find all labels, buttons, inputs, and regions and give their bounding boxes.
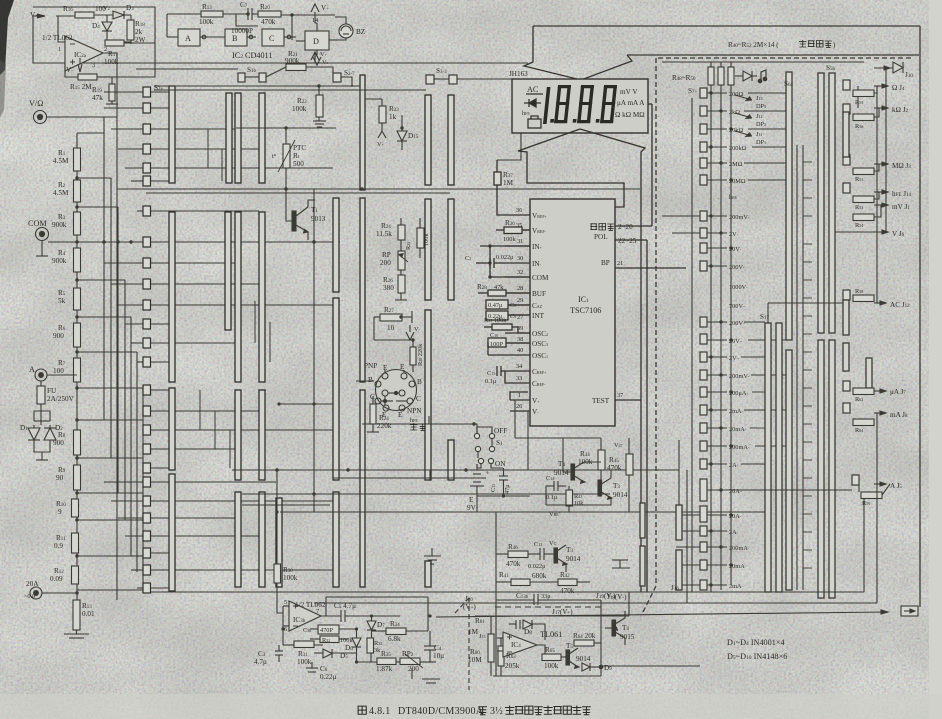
svg-text:4.5M: 4.5M — [53, 157, 69, 165]
svg-text:100P: 100P — [490, 341, 503, 348]
svg-text:47μ: 47μ — [504, 484, 511, 494]
svg-text:AC: AC — [527, 85, 539, 94]
svg-text:27: 27 — [517, 314, 523, 321]
svg-text:2: 2 — [104, 46, 107, 53]
svg-text:5k: 5k — [58, 297, 66, 305]
svg-text:C: C — [416, 395, 421, 403]
svg-text:500: 500 — [293, 160, 304, 168]
svg-text:200mV~: 200mV~ — [729, 373, 751, 380]
svg-text:220k: 220k — [377, 422, 392, 430]
svg-text:4.7μ: 4.7μ — [254, 658, 267, 666]
svg-text:28: 28 — [517, 285, 523, 292]
svg-text:900: 900 — [53, 332, 64, 340]
svg-text:V2: V2 — [103, 5, 110, 12]
svg-text:1/2 TL062: 1/2 TL062 — [295, 601, 326, 609]
svg-text:100k: 100k — [544, 662, 559, 670]
svg-text:470P: 470P — [320, 627, 333, 634]
svg-text:2V~: 2V~ — [729, 355, 740, 362]
svg-text:OSC3: OSC3 — [532, 340, 548, 348]
svg-text:R58: R58 — [855, 288, 863, 295]
svg-text:38: 38 — [517, 336, 523, 343]
svg-text:2W: 2W — [135, 36, 146, 44]
svg-text:J15: J15 — [479, 633, 485, 640]
svg-text:200kΩ: 200kΩ — [729, 145, 747, 152]
svg-text:C11: C11 — [487, 370, 495, 377]
svg-text:47k: 47k — [92, 94, 103, 102]
svg-text:2A/250V: 2A/250V — [47, 395, 75, 403]
svg-text:2mA-: 2mA- — [729, 408, 744, 415]
svg-text:ON: ON — [495, 460, 506, 468]
svg-text:TL061: TL061 — [540, 630, 562, 639]
svg-text:B: B — [417, 378, 422, 386]
svg-text:IN+: IN+ — [532, 243, 543, 251]
svg-text:1: 1 — [518, 392, 521, 399]
svg-text:V+: V+ — [532, 397, 540, 405]
svg-text:BZ: BZ — [356, 28, 365, 36]
svg-text:VREF+: VREF+ — [532, 212, 548, 220]
svg-text:OSC1: OSC1 — [532, 352, 548, 360]
svg-text:C10: C10 — [490, 332, 498, 339]
svg-text:R56: R56 — [855, 123, 863, 130]
svg-text:30: 30 — [517, 255, 523, 262]
svg-text:2mA-: 2mA- — [729, 583, 744, 590]
svg-text:700V~: 700V~ — [729, 303, 746, 310]
svg-text:6: 6 — [284, 626, 287, 633]
svg-text:(V+): (V+) — [463, 603, 476, 611]
svg-text:3: 3 — [92, 62, 95, 69]
svg-text:VC: VC — [549, 540, 557, 547]
svg-text:20A-: 20A- — [729, 513, 742, 520]
svg-text:TEST: TEST — [592, 397, 610, 405]
svg-text:IN-: IN- — [532, 260, 542, 268]
svg-text:470k: 470k — [607, 464, 622, 472]
svg-text:29: 29 — [517, 297, 523, 304]
svg-text:20A: 20A — [26, 580, 39, 588]
svg-text:0.01: 0.01 — [82, 610, 95, 618]
svg-text:9015: 9015 — [620, 633, 635, 641]
svg-text:V-: V- — [414, 326, 421, 333]
svg-text:20mA-: 20mA- — [729, 563, 747, 570]
svg-text:OFF: OFF — [494, 427, 507, 435]
svg-text:100k: 100k — [104, 58, 119, 66]
svg-text:V/Ω: V/Ω — [29, 99, 43, 108]
svg-text:1.87k: 1.87k — [376, 665, 393, 673]
svg-text:9014: 9014 — [566, 555, 581, 563]
svg-text:35: 35 — [516, 222, 522, 229]
svg-text:20MΩ: 20MΩ — [729, 178, 746, 185]
svg-text:DP1: DP1 — [756, 139, 766, 146]
svg-text:D: D — [313, 37, 319, 46]
svg-text:R62: R62 — [855, 396, 863, 403]
svg-text:JH163: JH163 — [509, 70, 528, 78]
svg-text:470k: 470k — [261, 18, 276, 26]
svg-text:20kΩ: 20kΩ — [729, 127, 743, 134]
svg-text:C15: C15 — [490, 484, 497, 492]
svg-text:10μ: 10μ — [433, 652, 444, 660]
svg-text:VBE': VBE' — [549, 511, 560, 518]
svg-text:BUF: BUF — [532, 290, 546, 298]
svg-text:90: 90 — [56, 474, 64, 482]
svg-text:20V-: 20V- — [729, 246, 742, 253]
svg-text:2k: 2k — [135, 28, 143, 36]
svg-text:6.8k: 6.8k — [388, 635, 401, 643]
svg-text:B: B — [232, 34, 238, 43]
svg-text:20A~: 20A~ — [729, 488, 743, 495]
svg-text:9: 9 — [58, 508, 62, 516]
svg-text:680k: 680k — [532, 572, 547, 580]
svg-text:R51: R51 — [855, 176, 863, 183]
svg-text:DP3: DP3 — [756, 103, 766, 110]
svg-text:A: A — [29, 365, 35, 374]
svg-text:V+: V+ — [320, 51, 328, 58]
svg-text:0.1μ: 0.1μ — [546, 494, 558, 501]
svg-text:7: 7 — [316, 608, 319, 615]
svg-text:10: 10 — [387, 324, 395, 332]
svg-text:INT: INT — [532, 312, 545, 320]
svg-text:hFE: hFE — [729, 194, 737, 201]
svg-text:32: 32 — [517, 269, 523, 276]
svg-text:9014: 9014 — [613, 491, 628, 499]
svg-text:C14: C14 — [546, 475, 554, 482]
svg-text:470k: 470k — [560, 587, 575, 595]
svg-text:R15 2M: R15 2M — [70, 83, 92, 91]
svg-text:CREF-: CREF- — [532, 380, 546, 388]
svg-text:200mA-: 200mA- — [729, 545, 750, 552]
svg-text:100k: 100k — [503, 236, 516, 243]
svg-text:COM: COM — [28, 219, 47, 228]
svg-text:2kΩ: 2kΩ — [729, 109, 740, 116]
svg-text:J12: J12 — [756, 113, 762, 120]
svg-text:V+: V+ — [377, 141, 385, 148]
svg-text:C: C — [269, 34, 275, 43]
svg-text:22~25: 22~25 — [618, 237, 637, 245]
svg-text:470k: 470k — [506, 560, 521, 568]
svg-text:2~20: 2~20 — [618, 223, 633, 231]
svg-text:200V~: 200V~ — [729, 320, 746, 327]
svg-text:VREF-: VREF- — [532, 227, 547, 235]
svg-text:1M: 1M — [468, 628, 479, 636]
svg-text:BP: BP — [601, 259, 610, 267]
svg-text:4.8.1: 4.8.1 — [369, 706, 391, 717]
svg-text:200mA-: 200mA- — [729, 444, 750, 451]
svg-text:5: 5 — [284, 599, 287, 606]
svg-text:0.022μ: 0.022μ — [528, 563, 546, 570]
svg-text:NPN: NPN — [407, 407, 422, 415]
svg-text:V-: V- — [532, 408, 539, 416]
svg-text:C9: C9 — [510, 313, 516, 320]
svg-text:R25: R25 — [405, 242, 412, 250]
svg-text:47k: 47k — [494, 284, 504, 291]
svg-text:D1~D4 IN4001×4: D1~D4 IN4001×4 — [727, 638, 785, 647]
svg-text:0.22μ: 0.22μ — [320, 673, 337, 681]
svg-text:26: 26 — [516, 403, 522, 410]
svg-text:1M: 1M — [503, 179, 514, 187]
svg-text:3½: 3½ — [490, 706, 503, 717]
svg-text:R32: R32 — [322, 637, 330, 644]
svg-text:9014: 9014 — [554, 469, 569, 477]
svg-text:900: 900 — [53, 439, 64, 447]
svg-text:2A-: 2A- — [729, 462, 739, 469]
svg-text:DT840D/CM3900A: DT840D/CM3900A — [398, 706, 484, 717]
svg-text:R55: R55 — [855, 99, 863, 106]
svg-text:C2: C2 — [465, 255, 471, 262]
svg-text:11.5k: 11.5k — [376, 230, 392, 238]
svg-text:36: 36 — [516, 207, 522, 214]
svg-text:33: 33 — [516, 375, 522, 382]
svg-text:J13: J13 — [756, 95, 762, 102]
svg-text:100k: 100k — [423, 233, 430, 246]
svg-text:E: E — [383, 364, 388, 372]
svg-text:R59: R59 — [862, 500, 870, 507]
svg-text:20V~: 20V~ — [729, 338, 743, 345]
svg-text:100k: 100k — [578, 458, 593, 466]
svg-text:R43: R43 — [574, 493, 582, 500]
svg-text:100k: 100k — [283, 574, 298, 582]
svg-text:200μA-: 200μA- — [729, 390, 748, 397]
svg-text:380: 380 — [383, 284, 394, 292]
svg-text:A: A — [185, 34, 191, 43]
svg-text:CAZ: CAZ — [532, 302, 543, 310]
svg-text:C12: C12 — [534, 541, 542, 548]
svg-text:900k: 900k — [52, 257, 67, 265]
svg-text:D5~D10 IN4148×6: D5~D10 IN4148×6 — [727, 652, 787, 661]
svg-text:10000P: 10000P — [231, 27, 253, 35]
svg-text:R32: R32 — [374, 640, 382, 647]
svg-text:DP2: DP2 — [756, 121, 766, 128]
svg-text:39: 39 — [517, 325, 523, 332]
svg-text:200: 200 — [380, 259, 391, 267]
svg-text:C3b: C3b — [303, 627, 311, 634]
svg-text:205k: 205k — [505, 662, 520, 670]
svg-text:OSC2: OSC2 — [532, 330, 548, 338]
svg-text:1/2 TL062: 1/2 TL062 — [42, 34, 73, 42]
svg-text:4.5M: 4.5M — [53, 189, 69, 197]
svg-text:37: 37 — [617, 392, 623, 399]
svg-text:1k: 1k — [389, 113, 397, 121]
svg-text:J11: J11 — [756, 131, 762, 138]
svg-text:hFE: hFE — [410, 417, 418, 424]
svg-text:100k: 100k — [297, 658, 312, 666]
svg-text:CREF+: CREF+ — [532, 368, 547, 376]
svg-text:IC2 CD4011: IC2 CD4011 — [232, 51, 272, 60]
svg-text:0.1μ: 0.1μ — [485, 378, 497, 385]
svg-text:R28 220k: R28 220k — [417, 343, 424, 366]
svg-text:E: E — [469, 496, 474, 504]
svg-text:μA mA A: μA mA A — [617, 99, 645, 107]
svg-text:9014: 9014 — [576, 655, 591, 663]
svg-text:TSC7106: TSC7106 — [570, 306, 601, 315]
svg-text:100: 100 — [53, 367, 64, 375]
svg-text:R64 20k: R64 20k — [573, 632, 596, 640]
svg-text:10k: 10k — [574, 500, 584, 507]
svg-text:10M: 10M — [468, 656, 482, 664]
svg-text:0.09: 0.09 — [50, 575, 63, 583]
svg-text:34: 34 — [516, 363, 523, 370]
svg-text:9V: 9V — [467, 504, 477, 512]
svg-text:900k: 900k — [52, 221, 67, 229]
svg-text:hFE: hFE — [522, 110, 530, 117]
svg-text:E: E — [398, 411, 403, 419]
svg-text:20mA-: 20mA- — [729, 426, 747, 433]
svg-text:100k: 100k — [199, 18, 214, 26]
svg-text:R53: R53 — [855, 204, 863, 211]
svg-text:PNP: PNP — [364, 362, 377, 370]
svg-text:0.9: 0.9 — [54, 542, 63, 550]
svg-text:Ω kΩ MΩ: Ω kΩ MΩ — [615, 111, 645, 119]
svg-text:200mV-: 200mV- — [729, 214, 750, 221]
svg-text:E: E — [400, 363, 405, 371]
svg-text:2MΩ: 2MΩ — [729, 161, 743, 168]
svg-text:t°: t° — [272, 153, 277, 160]
svg-text:mV V: mV V — [620, 88, 638, 96]
svg-text:FU: FU — [47, 387, 57, 395]
svg-text:9013: 9013 — [311, 215, 326, 223]
svg-text:V47: V47 — [614, 442, 623, 449]
svg-text:+: + — [486, 470, 490, 477]
svg-text:100k: 100k — [292, 105, 307, 113]
svg-text:R29 100k: R29 100k — [484, 317, 507, 324]
svg-text:R64: R64 — [855, 427, 863, 434]
svg-text:33μ: 33μ — [541, 593, 551, 600]
svg-text:0.47μ: 0.47μ — [488, 302, 503, 309]
svg-text:200V-: 200V- — [729, 264, 745, 271]
svg-text:RP: RP — [382, 251, 391, 259]
svg-text:100k: 100k — [340, 637, 353, 644]
svg-text:POL: POL — [594, 233, 608, 241]
svg-text:14: 14 — [312, 17, 319, 24]
svg-text:2A-: 2A- — [729, 529, 739, 536]
svg-text:COM: COM — [532, 274, 549, 282]
svg-text:40: 40 — [517, 347, 523, 354]
svg-text:21: 21 — [617, 260, 623, 267]
svg-text:1: 1 — [58, 46, 61, 53]
svg-text:C: C — [370, 393, 375, 401]
svg-text:C8: C8 — [510, 302, 516, 309]
svg-text:900k: 900k — [285, 57, 300, 65]
svg-text:200: 200 — [408, 665, 419, 673]
svg-text:~0.0: ~0.0 — [24, 593, 35, 600]
svg-text:PTC: PTC — [293, 144, 306, 152]
svg-text:R54: R54 — [855, 222, 863, 229]
svg-text:1000V-: 1000V- — [729, 284, 748, 291]
svg-text:31: 31 — [517, 238, 523, 245]
svg-text:200Ω: 200Ω — [729, 91, 743, 98]
svg-text:0.022μ: 0.022μ — [496, 254, 514, 261]
svg-text:2V-: 2V- — [729, 231, 739, 238]
